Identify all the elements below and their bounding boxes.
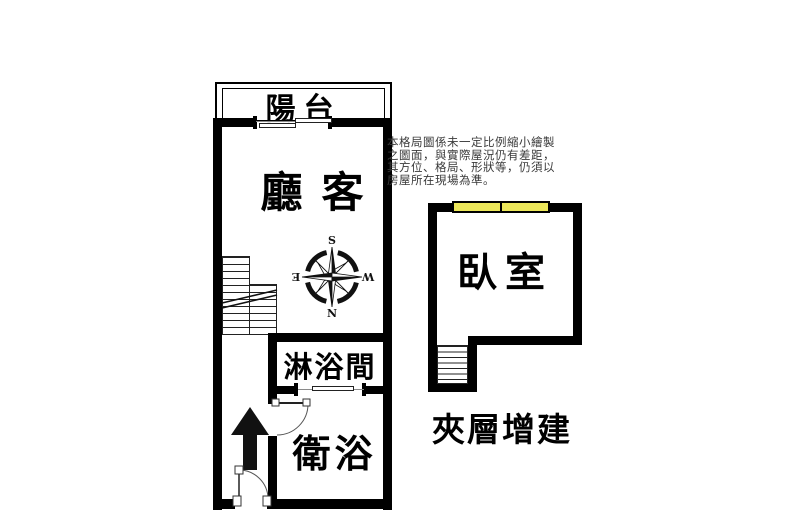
disclaimer-line: 房屋所在現場為準。 — [387, 174, 572, 187]
compass-west-letter: W — [361, 270, 375, 283]
bedroom-window-divider — [500, 201, 502, 213]
wall — [213, 118, 222, 510]
compass-icon: S N E W — [290, 235, 374, 319]
entry-arrow-icon — [228, 405, 272, 471]
mezzanine-label: 夾層增建 — [427, 403, 577, 451]
floor-plan-canvas: 陽台 客廳 淋浴間 衛浴 — [0, 0, 800, 529]
compass-east-letter: E — [292, 270, 300, 283]
entrance-door — [228, 464, 276, 510]
shower-sliding-door-panel — [312, 386, 354, 391]
bedroom-label: 臥室 — [437, 240, 573, 298]
wall — [213, 118, 256, 127]
wall — [468, 336, 582, 345]
wall — [428, 203, 437, 392]
wall — [268, 386, 296, 394]
stairs-break-line — [220, 284, 280, 310]
wall — [428, 383, 477, 392]
balcony-sliding-door-panel — [295, 118, 332, 123]
wall — [329, 118, 392, 127]
disclaimer-text: 本格局圖係未一定比例縮小繪製 之圖面，與實際屋況仍有差距， 其方位、格局、形狀等… — [387, 136, 572, 186]
wall — [268, 333, 392, 342]
compass-south-letter: S — [328, 234, 336, 247]
shower-room-label: 淋浴間 — [268, 344, 392, 386]
disclaimer-line: 其方位、格局、形狀等，仍須以 — [387, 161, 572, 174]
wall-cap — [253, 116, 257, 129]
wall — [573, 203, 582, 345]
mezzanine-stairs — [437, 345, 468, 384]
living-room-label: 客廳 — [326, 146, 370, 241]
balcony-sliding-door-panel — [259, 123, 296, 128]
wall — [364, 386, 392, 394]
disclaimer-line: 本格局圖係未一定比例縮小繪製 — [387, 136, 572, 149]
bathroom-label: 衛浴 — [277, 423, 392, 478]
compass-north-letter: N — [327, 307, 337, 320]
